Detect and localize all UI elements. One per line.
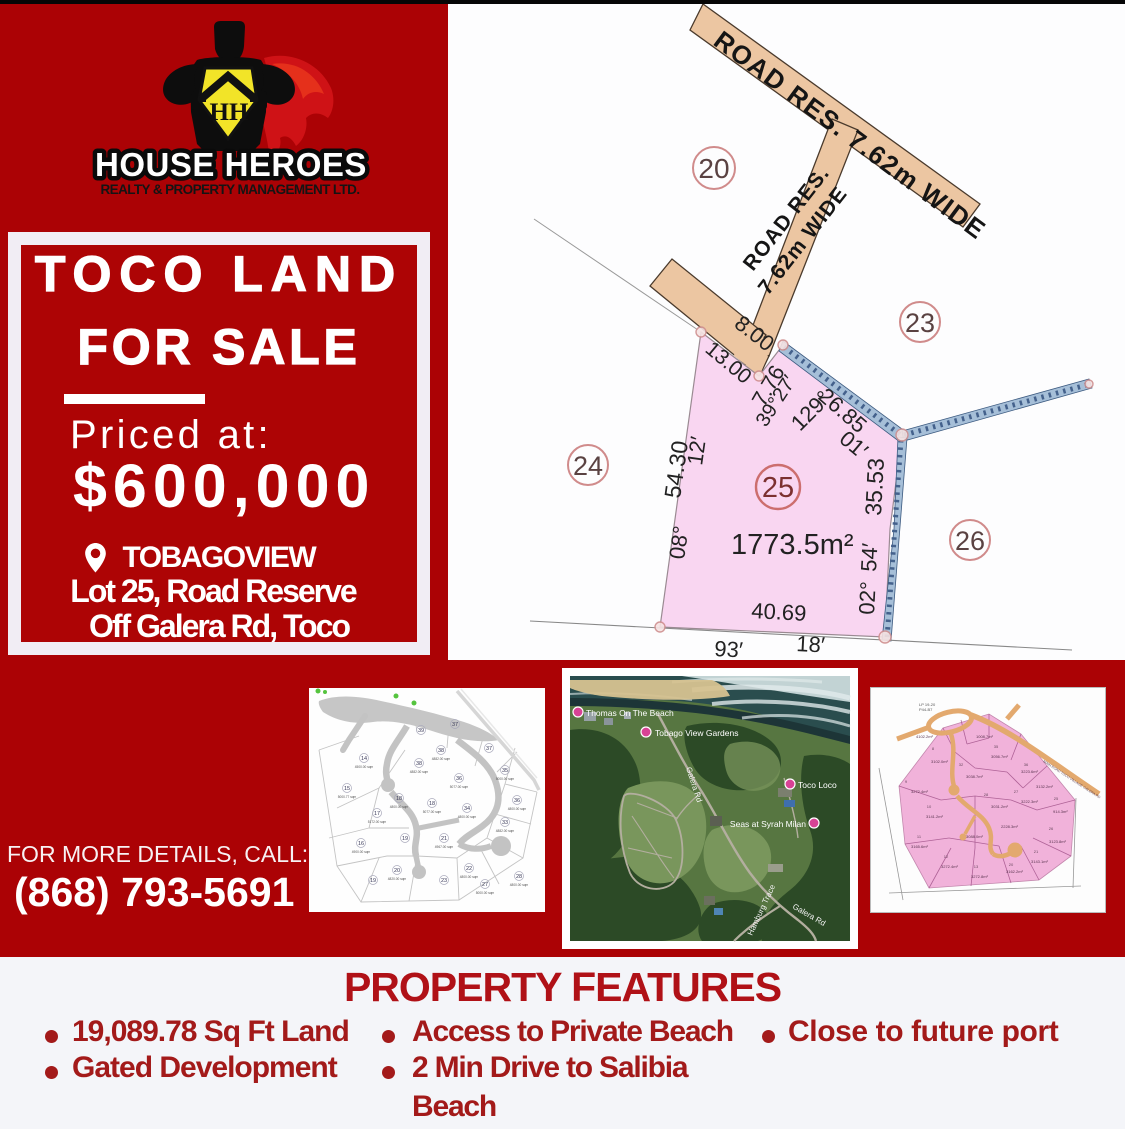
svg-text:23: 23	[441, 878, 447, 884]
svg-text:28: 28	[984, 792, 989, 797]
svg-text:5172.00 sqm: 5172.00 sqm	[368, 820, 387, 824]
svg-text:P44-B7: P44-B7	[919, 707, 933, 712]
svg-text:5077.00 sqm: 5077.00 sqm	[423, 810, 442, 814]
svg-text:35: 35	[994, 744, 999, 749]
svg-text:36: 36	[1024, 762, 1029, 767]
svg-text:21: 21	[441, 836, 447, 842]
svg-text:4102.2m²: 4102.2m²	[916, 734, 934, 739]
svg-text:3088.0m²: 3088.0m²	[966, 834, 984, 839]
svg-text:4967.00 sqm: 4967.00 sqm	[435, 845, 454, 849]
svg-text:4882.00 sqm: 4882.00 sqm	[496, 829, 515, 833]
svg-text:27: 27	[482, 882, 488, 888]
svg-text:54′: 54′	[856, 542, 882, 572]
svg-text:3143.1m²: 3143.1m²	[1031, 859, 1049, 864]
svg-text:21: 21	[1034, 849, 1039, 854]
svg-text:3272.4m²: 3272.4m²	[911, 789, 929, 794]
svg-text:36: 36	[514, 798, 520, 804]
svg-text:19: 19	[402, 836, 408, 842]
svg-text:02°: 02°	[854, 581, 881, 616]
svg-text:HH: HH	[210, 99, 249, 126]
svg-text:23: 23	[905, 308, 935, 338]
svg-text:4500.00 sqm: 4500.00 sqm	[355, 765, 374, 769]
svg-text:HOUSE HEROES: HOUSE HEROES	[95, 146, 367, 183]
svg-text:10: 10	[927, 804, 932, 809]
svg-text:93′: 93′	[714, 636, 744, 661]
svg-text:08°: 08°	[664, 524, 693, 560]
svg-text:12′: 12′	[682, 435, 711, 467]
svg-text:38: 38	[438, 748, 444, 754]
svg-text:3102.0m²: 3102.0m²	[931, 759, 949, 764]
svg-text:3038.7m²: 3038.7m²	[966, 774, 984, 779]
svg-text:914.3m²: 914.3m²	[1053, 809, 1068, 814]
svg-text:37: 37	[486, 746, 492, 752]
svg-text:3222.3m²: 3222.3m²	[1021, 799, 1039, 804]
svg-text:5000.00 sqm: 5000.00 sqm	[476, 891, 495, 895]
svg-text:5077.00 sqm: 5077.00 sqm	[450, 785, 469, 789]
svg-text:3141.2m²: 3141.2m²	[926, 814, 944, 819]
svg-text:12: 12	[944, 854, 949, 859]
svg-text:4800.00 sqm: 4800.00 sqm	[390, 805, 409, 809]
svg-text:24: 24	[573, 451, 603, 481]
svg-text:14: 14	[361, 756, 367, 762]
svg-text:19: 19	[370, 878, 376, 884]
svg-text:ROAD RES. 7.62m WIDE: ROAD RES. 7.62m WIDE	[708, 25, 992, 246]
svg-text:4900.00 sqm: 4900.00 sqm	[352, 850, 371, 854]
svg-text:33: 33	[502, 820, 508, 826]
svg-text:16: 16	[358, 841, 364, 847]
svg-text:25: 25	[762, 472, 794, 504]
svg-text:3056.7m²: 3056.7m²	[991, 754, 1009, 759]
svg-text:26: 26	[1049, 826, 1054, 831]
svg-text:38: 38	[416, 761, 422, 767]
svg-text:37: 37	[452, 722, 458, 728]
svg-text:15: 15	[344, 786, 350, 792]
svg-text:3223.6m²: 3223.6m²	[1021, 769, 1039, 774]
svg-text:Tobago View Gardens: Tobago View Gardens	[655, 728, 738, 738]
svg-text:20: 20	[1009, 862, 1014, 867]
svg-text:1008.7m²: 1008.7m²	[976, 734, 994, 739]
svg-text:13: 13	[974, 864, 979, 869]
svg-text:18′: 18′	[796, 631, 826, 657]
svg-text:3272.8m²: 3272.8m²	[971, 874, 989, 879]
svg-text:27: 27	[1014, 789, 1019, 794]
svg-text:3132.2m²: 3132.2m²	[1036, 784, 1054, 789]
svg-text:4800.00 sqm: 4800.00 sqm	[510, 883, 529, 887]
svg-text:35: 35	[502, 768, 508, 774]
svg-text:REALTY & PROPERTY MANAGEMENT L: REALTY & PROPERTY MANAGEMENT LTD.	[101, 182, 360, 197]
svg-text:3165.6m²: 3165.6m²	[911, 844, 929, 849]
svg-text:4800.00 sqm: 4800.00 sqm	[460, 875, 479, 879]
svg-text:3272.4m²: 3272.4m²	[941, 864, 959, 869]
svg-text:18: 18	[429, 801, 435, 807]
svg-text:22: 22	[466, 866, 472, 872]
svg-text:32: 32	[959, 762, 964, 767]
svg-text:4820.00 sqm: 4820.00 sqm	[388, 877, 407, 881]
svg-text:4800.00 sqm: 4800.00 sqm	[458, 815, 477, 819]
svg-text:35.53: 35.53	[860, 457, 889, 516]
svg-text:17: 17	[374, 811, 380, 817]
svg-text:20: 20	[394, 868, 400, 874]
svg-text:2228.3m²: 2228.3m²	[1001, 824, 1019, 829]
svg-text:4882.00 sqm: 4882.00 sqm	[432, 757, 451, 761]
svg-text:5000.00 sqm: 5000.00 sqm	[496, 777, 515, 781]
svg-text:3031.2m²: 3031.2m²	[991, 804, 1009, 809]
svg-text:20: 20	[698, 153, 729, 184]
svg-text:4800.00 sqm: 4800.00 sqm	[508, 807, 527, 811]
svg-text:3162.2m²: 3162.2m²	[1006, 869, 1024, 874]
svg-text:Toco Loco: Toco Loco	[798, 780, 837, 790]
svg-text:36: 36	[456, 776, 462, 782]
svg-text:28: 28	[516, 874, 522, 880]
svg-text:40.69: 40.69	[751, 598, 807, 626]
svg-text:3123.8m²: 3123.8m²	[1049, 839, 1067, 844]
svg-text:34: 34	[464, 806, 470, 812]
svg-text:26: 26	[955, 526, 985, 556]
svg-text:Seas at Syrah Milan: Seas at Syrah Milan	[730, 819, 806, 829]
svg-text:Thomas On The Beach: Thomas On The Beach	[586, 708, 674, 718]
svg-text:5000.77 sqm: 5000.77 sqm	[338, 795, 357, 799]
svg-text:18: 18	[396, 796, 402, 802]
svg-text:1773.5m²: 1773.5m²	[731, 529, 854, 561]
svg-text:4882.00 sqm: 4882.00 sqm	[410, 770, 429, 774]
svg-text:39: 39	[418, 728, 424, 734]
svg-text:25: 25	[1054, 796, 1059, 801]
